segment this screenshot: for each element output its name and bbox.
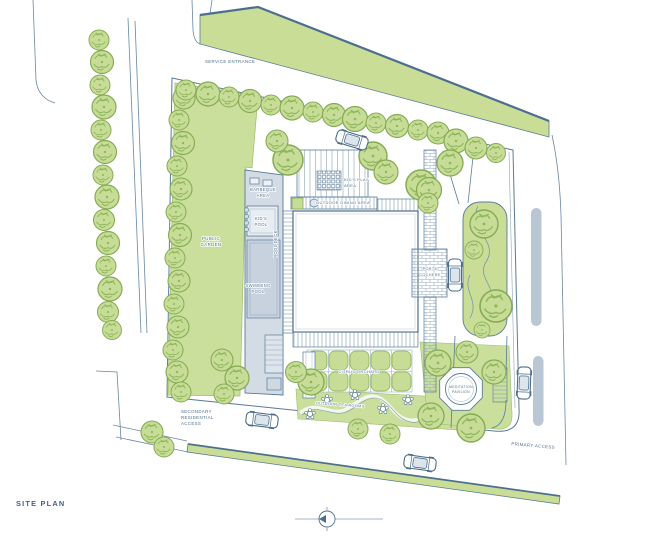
tree-icon — [91, 120, 111, 140]
car-icon — [245, 410, 279, 429]
service-slip-road-curb — [192, 0, 200, 44]
label-citrus-orchard: CITRUS ORCHARD — [338, 369, 379, 374]
tree-icon — [163, 340, 183, 360]
road-lane-markings — [531, 208, 544, 426]
label-barbeque-area: BARBEQUE — [250, 187, 276, 192]
label-porte-cochere: COCHERE — [419, 273, 441, 277]
site-plan-page: SERVICE ENTRANCE PUBLIC GARDEN BARBEQUE … — [0, 0, 655, 540]
car-icon — [447, 259, 462, 291]
tree-icon — [366, 113, 386, 133]
tree-icon — [93, 165, 113, 185]
residential-tower — [283, 199, 418, 347]
label-kids-play-area: KID'S PLAY — [344, 177, 369, 182]
left-road-west-curb — [33, 0, 55, 103]
tree-icon — [103, 321, 122, 340]
tree-icon — [487, 144, 506, 163]
barbeque-grill — [250, 178, 259, 184]
lane-marking-capsule — [533, 356, 544, 426]
tree-icon — [474, 322, 490, 338]
tree-icon — [154, 437, 174, 457]
tree-icon — [94, 141, 117, 164]
north-indicator — [295, 507, 383, 531]
tree-icon — [166, 202, 186, 222]
tree-icon — [97, 232, 120, 255]
label-pool-deck: POOL DECK — [273, 230, 278, 257]
label-secondary-residential-access: SECONDARY — [181, 409, 212, 414]
tree-icon — [261, 95, 281, 115]
tree-icon — [408, 120, 428, 140]
tree-icon — [465, 241, 483, 259]
tree-icon — [280, 96, 304, 120]
tree-icon — [348, 419, 368, 439]
label-public-garden: PUBLIC — [202, 236, 220, 241]
label-kids-pool: POOL — [254, 222, 267, 227]
road-centerline-stub — [210, 0, 212, 14]
colonnade-north — [377, 199, 418, 212]
tree-icon — [457, 414, 485, 442]
label-kids-play-area: AREA — [344, 183, 356, 188]
tree-icon — [196, 82, 220, 106]
tree-icon — [164, 294, 184, 314]
tree-icon — [98, 302, 119, 323]
tree-icon — [323, 104, 346, 127]
tree-icon — [343, 107, 368, 132]
tree-icon — [168, 270, 190, 292]
tree-icon — [437, 150, 463, 176]
label-service-entrance: SERVICE ENTRANCE — [205, 59, 255, 64]
label-outdoor-dining-area: OUTDOOR DINING AREA — [316, 200, 370, 205]
site-plan-drawing: SERVICE ENTRANCE PUBLIC GARDEN BARBEQUE … — [0, 0, 655, 540]
tree-icon — [176, 80, 196, 100]
label-secondary-residential-access: RESIDENTIAL — [181, 415, 214, 420]
tower-footprint — [293, 211, 418, 332]
tree-icon — [91, 51, 114, 74]
primary-access-road-median — [187, 444, 560, 504]
tree-icon — [171, 382, 191, 402]
colonnade-south — [293, 332, 418, 347]
tree-icon — [169, 110, 189, 130]
tree-icon — [170, 178, 192, 200]
tree-icon — [165, 248, 185, 268]
tree-icon — [239, 90, 262, 113]
entry-walkway-south — [424, 297, 436, 392]
planter — [292, 198, 303, 209]
tree-icon — [90, 75, 110, 95]
right-road-east-curb — [552, 135, 566, 465]
car-icon — [516, 367, 533, 400]
label-secondary-residential-access: ACCESS — [181, 421, 201, 426]
tree-icon — [374, 160, 398, 184]
tree-icon — [96, 256, 116, 276]
tree-icon — [211, 349, 233, 371]
tree-icon — [444, 129, 468, 153]
tree-icon — [95, 185, 119, 209]
tree-icon — [92, 95, 116, 119]
label-meditation-pavilion: PAVILION — [452, 390, 470, 394]
tree-icon — [167, 316, 189, 338]
car-icon — [403, 453, 437, 473]
label-kids-pool: KID'S — [255, 216, 267, 221]
label-swimming-pool: POOL — [251, 289, 264, 294]
colonnade-west — [283, 211, 293, 333]
tree-icon — [172, 132, 195, 155]
meditation-pavilion — [440, 368, 483, 411]
tree-icon — [166, 361, 188, 383]
tree-icon — [482, 360, 506, 384]
label-public-garden: GARDEN — [201, 242, 222, 247]
tree-icon — [167, 156, 187, 176]
label-porte-cochere: PORTE — [423, 267, 438, 271]
lane-marking-capsule — [531, 208, 542, 326]
tree-icon — [425, 350, 451, 376]
label-meditation-pavilion: MEDITATION — [449, 385, 473, 389]
tree-icon — [480, 290, 512, 322]
drawing-title: SITE PLAN — [16, 499, 65, 508]
tree-icon — [380, 424, 400, 444]
tree-icon — [169, 224, 192, 247]
tree-icon — [98, 277, 122, 301]
tree-icon — [386, 115, 409, 138]
tree-icon — [470, 210, 498, 238]
left-road-east-curb — [128, 18, 141, 333]
intersection-curb — [96, 371, 121, 440]
label-primary-access: PRIMARY ACCESS — [511, 441, 555, 450]
tree-icon — [94, 210, 115, 231]
tree-icon — [214, 384, 234, 404]
tree-icon — [456, 341, 478, 363]
tree-icon — [418, 193, 438, 213]
label-barbeque-area: AREA — [257, 193, 270, 198]
tree-icon — [89, 30, 109, 50]
label-swimming-pool: SWIMMING — [245, 283, 270, 288]
tree-icon — [418, 403, 444, 429]
tree-icon — [303, 102, 323, 122]
tree-icon — [465, 137, 487, 159]
pool-steps — [265, 335, 283, 390]
left-road-east-curb-2 — [135, 21, 147, 333]
tree-icon — [219, 87, 239, 107]
tree-icon — [266, 130, 288, 152]
tree-icon — [286, 362, 307, 383]
barbeque-grill — [263, 180, 272, 186]
